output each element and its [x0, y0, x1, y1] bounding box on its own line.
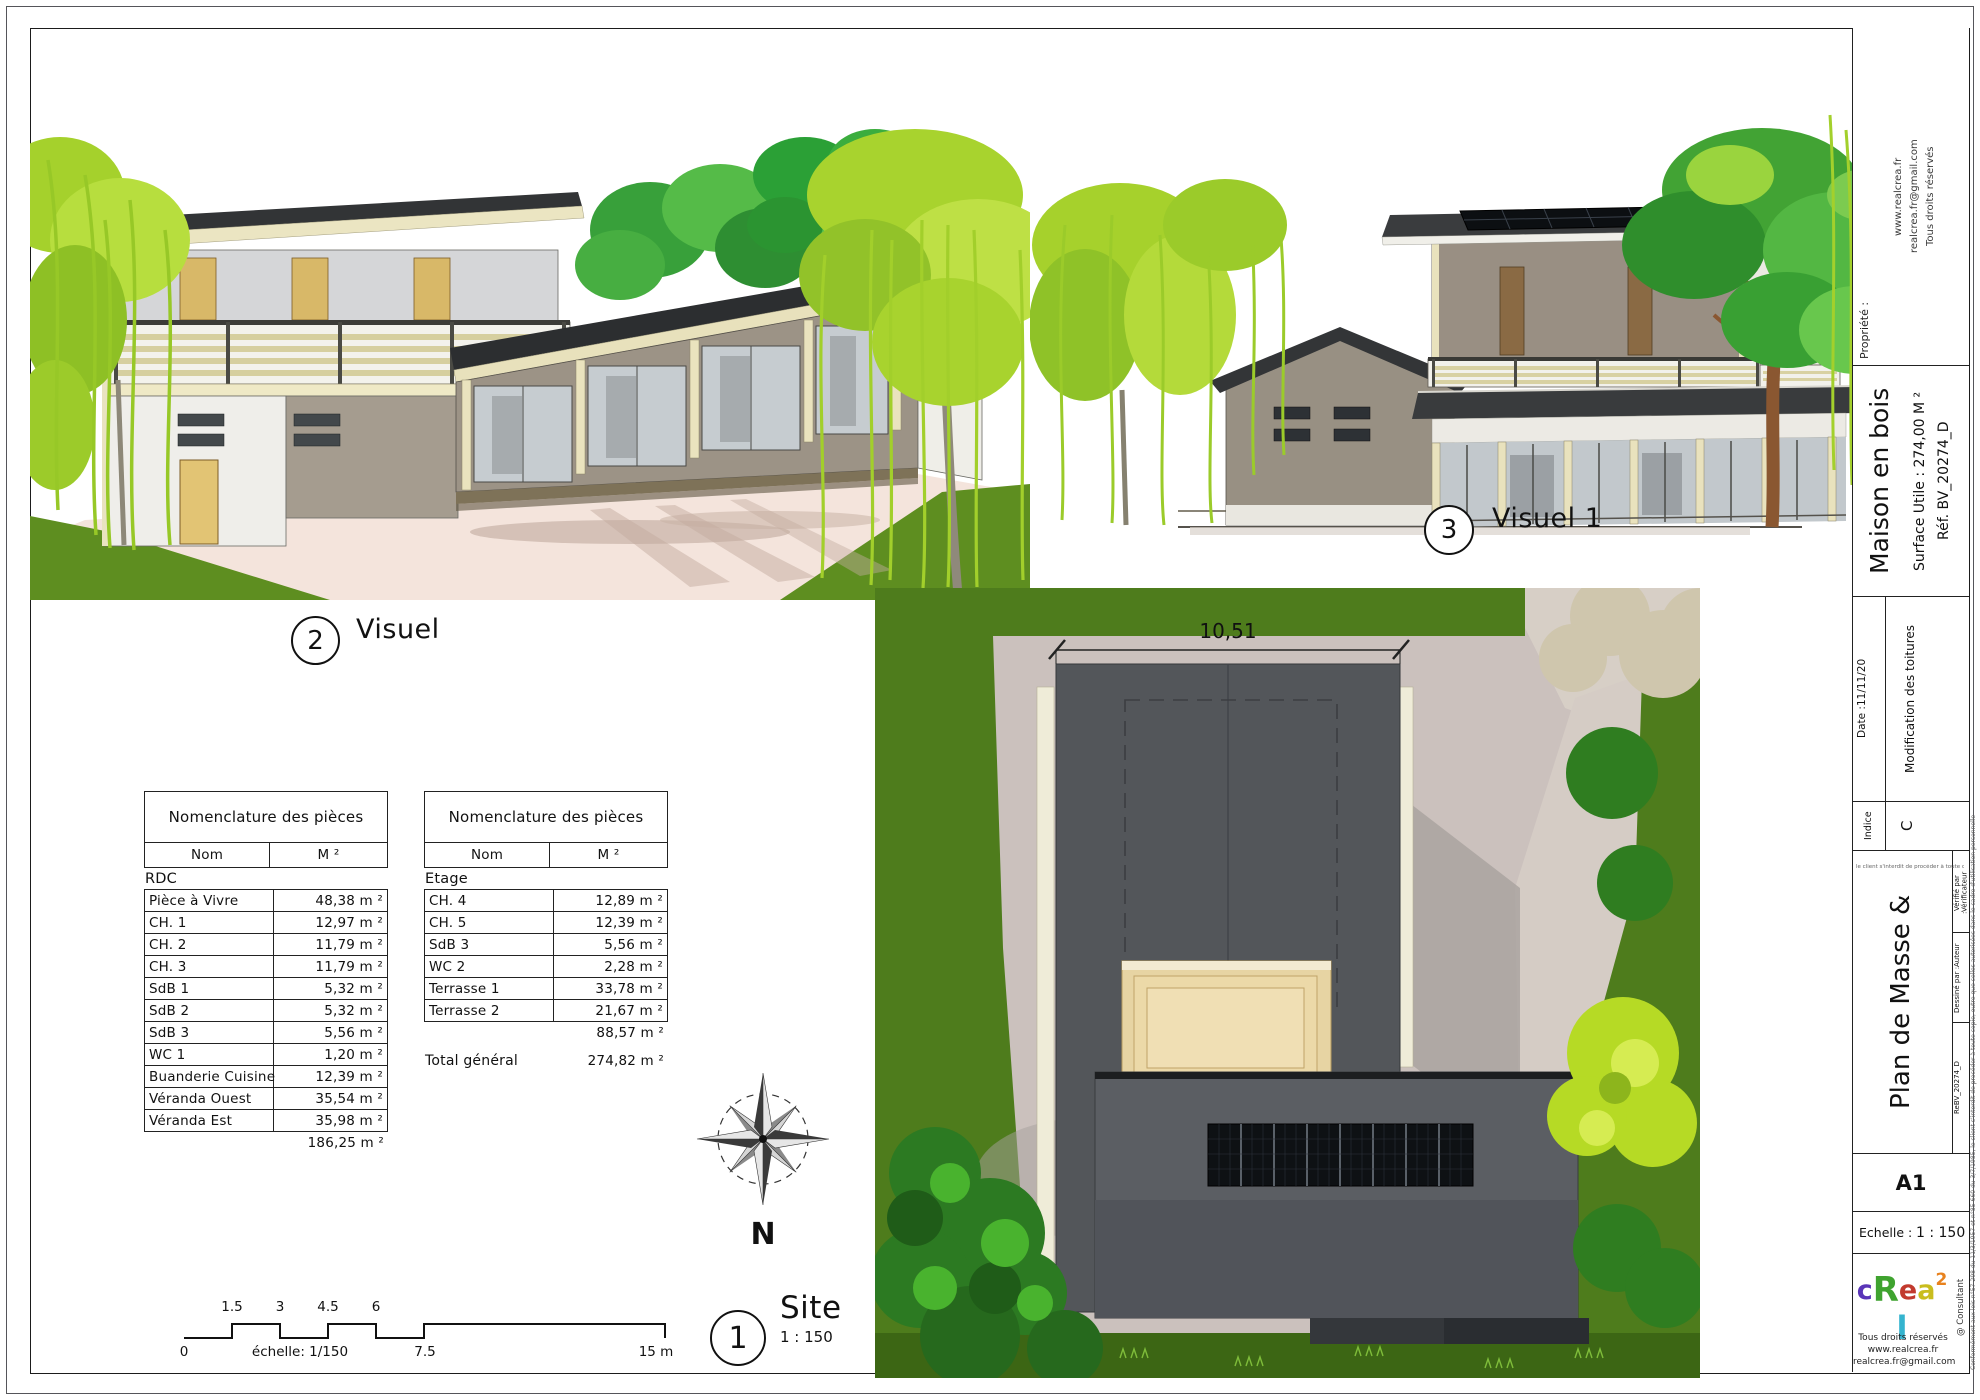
- table-row: SdB 35,56 m ²: [425, 933, 667, 955]
- rendering-visuel-1: [1030, 75, 1860, 565]
- scale-tick: 6: [372, 1299, 381, 1315]
- table-row: SdB 35,56 m ²: [145, 1021, 387, 1043]
- project-reference: Réf. BV_20274_D: [1933, 366, 1955, 596]
- drawing-sheet: 10,51: [0, 0, 1980, 1400]
- copyright: Tous droits réservés www.realcrea.fr rea…: [1853, 1332, 1953, 1368]
- col-nom: Nom: [425, 843, 550, 867]
- callout-title-visuel-1: Visuel 1: [1492, 503, 1602, 534]
- col-m2: M ²: [270, 843, 387, 867]
- revision-note: Modification des toitures: [1897, 601, 1923, 796]
- table-header: Nom M ²: [424, 843, 668, 868]
- callout-number-3: 3: [1424, 505, 1474, 555]
- titleblock-logo-cell: cRea2l @ Consultant Tous droits réservés…: [1853, 1253, 1969, 1373]
- project-title: Maison en bois: [1857, 366, 1903, 596]
- table-row: SdB 15,32 m ²: [145, 977, 387, 999]
- sheet-title: Plan de Masse & Visuels: [1853, 851, 1949, 1153]
- scale-value: 1 : 150: [1912, 1225, 1969, 1241]
- site-plan: 10,51: [875, 588, 1700, 1378]
- group-label-etage: Etage: [424, 868, 668, 889]
- table-row: CH. 311,79 m ²: [145, 955, 387, 977]
- titleblock-revision-cell: Date :11/11/20 Indice C Modification des…: [1853, 596, 1969, 850]
- titleblock-owner-cell: Propriété : www.realcrea.fr realcrea.fr@…: [1853, 28, 1969, 365]
- col-m2: M ²: [550, 843, 667, 867]
- scale-tick: 1.5: [221, 1299, 242, 1315]
- callout-visuel-2: 2 Visuel: [291, 616, 440, 665]
- table-row: Véranda Est35,98 m ²: [145, 1109, 387, 1131]
- table-row: CH. 112,97 m ²: [145, 911, 387, 933]
- scale-bar: 1.5 3 4.5 6 0 échelle: 1/150 7.5 15 m: [170, 1290, 850, 1370]
- etage-subtotal: 88,57 m ²: [424, 1022, 668, 1044]
- table-row: CH. 512,39 m ²: [425, 911, 667, 933]
- scale-tick: 7.5: [414, 1344, 435, 1360]
- table-row: WC 11,20 m ²: [145, 1043, 387, 1065]
- legal-edge-text: Conformément aux lois n°57-298 du 11/3/1…: [1969, 330, 1978, 1370]
- col-nom: Nom: [145, 843, 270, 867]
- drawn-by: Dessiné par :Auteur: [1954, 935, 1969, 1021]
- date: Date :11/11/20: [1856, 601, 1882, 796]
- titleblock-scale-cell: Echelle : 1 : 150: [1853, 1211, 1969, 1253]
- surface-utile: Surface Utile : 274,00 M ²: [1909, 366, 1931, 596]
- table-row: Pièce à Vivre48,38 m ²: [145, 890, 387, 911]
- scale-tick: 4.5: [317, 1299, 338, 1315]
- north-label: N: [750, 1217, 775, 1252]
- titleblock-project-cell: Maison en bois Surface Utile : 274,00 M …: [1853, 365, 1969, 596]
- scale-tick: 15 m: [639, 1344, 674, 1360]
- callout-visuel-1: 3 Visuel 1: [1424, 505, 1602, 555]
- sheet-ref-small: ReBV_20274_D: [1954, 1025, 1969, 1151]
- callout-title-visuel: Visuel: [356, 614, 440, 645]
- table-row: CH. 211,79 m ²: [145, 933, 387, 955]
- callout-number-2: 2: [291, 616, 340, 665]
- sheet-format: A1: [1853, 1153, 1969, 1211]
- divider: [1953, 932, 1969, 933]
- titleblock-title-cell: Plan de Masse & Visuels ReBV_20274_D Des…: [1853, 850, 1969, 1153]
- table-row: WC 22,28 m ²: [425, 955, 667, 977]
- table-title: Nomenclature des pièces: [424, 791, 668, 843]
- table-body: Pièce à Vivre48,38 m ² CH. 112,97 m ² CH…: [144, 889, 388, 1132]
- rendering-visuel-2: [30, 80, 1030, 600]
- divider: [1853, 801, 1969, 802]
- table-row: Buanderie Cuisine12,39 m ²: [145, 1065, 387, 1087]
- table-row: SdB 25,32 m ²: [145, 999, 387, 1021]
- compass-rose: N: [693, 1066, 833, 1256]
- propriete-label: Propriété :: [1856, 239, 1874, 359]
- scale-tick: 3: [276, 1299, 285, 1315]
- legal-bottom-text: le client s'interdit de procéder à toute…: [1856, 864, 1964, 870]
- table-header: Nom M ²: [144, 843, 388, 868]
- divider: [1885, 597, 1886, 850]
- scale-label: Echelle :: [1853, 1225, 1912, 1240]
- lower-roof: [1095, 1072, 1589, 1344]
- dimension-text: 10,51: [1199, 619, 1256, 643]
- scale-tick: 0: [180, 1344, 189, 1360]
- indice-value: C: [1893, 804, 1921, 848]
- table-row: Véranda Ouest35,54 m ²: [145, 1087, 387, 1109]
- pergola-terrace: [1122, 961, 1331, 1081]
- annex-gable: [1210, 327, 1470, 525]
- rdc-total: 186,25 m ²: [144, 1132, 388, 1154]
- contact-info: www.realcrea.fr realcrea.fr@gmail.com To…: [1891, 28, 1943, 365]
- table-nomenclature-rdc: Nomenclature des pièces Nom M ² RDC Pièc…: [144, 791, 388, 1154]
- title-block: Propriété : www.realcrea.fr realcrea.fr@…: [1852, 28, 1969, 1372]
- etage-total-row: Total général 274,82 m ²: [424, 1050, 668, 1072]
- consultant-label: @ Consultant: [1954, 1262, 1968, 1352]
- table-row: CH. 412,89 m ²: [425, 890, 667, 911]
- total-general-value: 274,82 m ²: [518, 1053, 668, 1069]
- scale-caption: échelle: 1/150: [252, 1344, 348, 1360]
- table-row: Terrasse 133,78 m ²: [425, 977, 667, 999]
- table-title: Nomenclature des pièces: [144, 791, 388, 843]
- group-label-rdc: RDC: [144, 868, 388, 889]
- indice-label: Indice: [1857, 804, 1881, 848]
- table-row: Terrasse 221,67 m ²: [425, 999, 667, 1021]
- total-general-label: Total général: [424, 1053, 518, 1069]
- table-nomenclature-etage: Nomenclature des pièces Nom M ² Etage CH…: [424, 791, 668, 1072]
- table-body: CH. 412,89 m ² CH. 512,39 m ² SdB 35,56 …: [424, 889, 668, 1022]
